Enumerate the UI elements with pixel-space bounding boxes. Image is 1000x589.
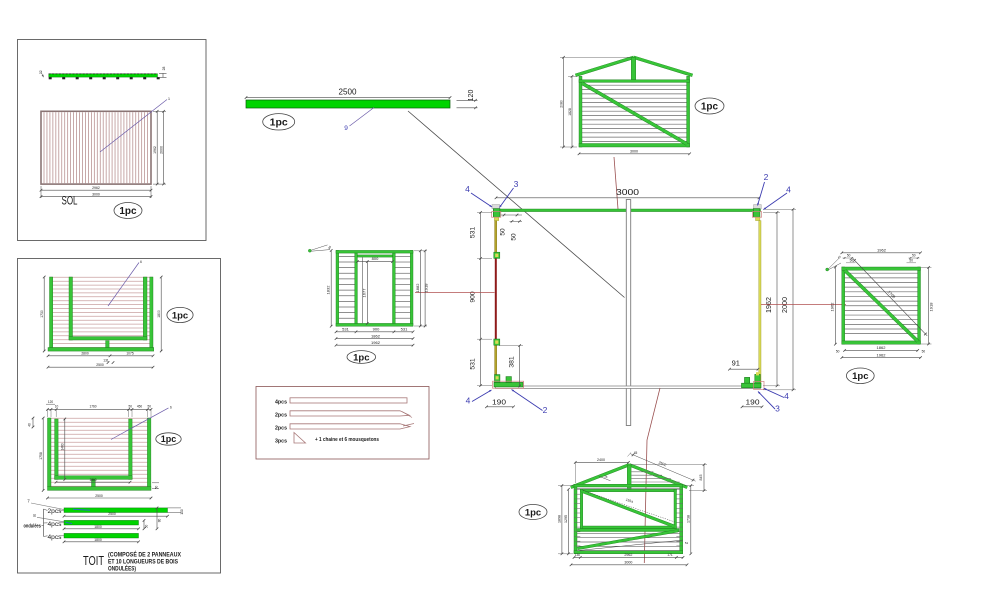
svg-text:4: 4: [784, 391, 789, 401]
svg-text:3000: 3000: [92, 192, 100, 196]
svg-text:50: 50: [145, 525, 149, 529]
svg-text:3: 3: [514, 179, 519, 189]
svg-text:1730: 1730: [40, 310, 44, 318]
svg-text:50: 50: [922, 349, 926, 353]
svg-text:9: 9: [344, 125, 348, 132]
svg-text:1862: 1862: [877, 345, 887, 350]
svg-text:4pcs: 4pcs: [48, 521, 63, 528]
svg-text:2pcs: 2pcs: [275, 412, 287, 418]
svg-text:4: 4: [466, 396, 471, 406]
svg-text:ONDULÉES): ONDULÉES): [108, 564, 136, 572]
svg-text:2400: 2400: [597, 458, 605, 462]
svg-text:50: 50: [836, 349, 840, 353]
svg-text:28: 28: [162, 67, 166, 71]
svg-text:2800: 2800: [81, 352, 89, 356]
svg-text:1918: 1918: [424, 283, 429, 293]
svg-text:531: 531: [401, 327, 408, 332]
svg-text:40: 40: [28, 423, 32, 427]
svg-text:91: 91: [732, 358, 740, 367]
svg-text:2962: 2962: [624, 553, 632, 557]
svg-text:2500: 2500: [96, 363, 104, 367]
svg-text:190: 190: [492, 397, 506, 406]
svg-text:1758: 1758: [39, 452, 43, 460]
svg-text:4: 4: [465, 184, 470, 194]
svg-text:2pcs: 2pcs: [275, 425, 287, 431]
svg-text:1075: 1075: [126, 352, 134, 356]
svg-text:2pcs: 2pcs: [48, 508, 63, 515]
svg-text:3000: 3000: [616, 187, 639, 197]
svg-text:1295: 1295: [564, 515, 568, 523]
svg-text:1962: 1962: [371, 340, 381, 345]
svg-text:ET 10 LONGUEURS DE BOIS: ET 10 LONGUEURS DE BOIS: [108, 559, 178, 565]
svg-text:1760: 1760: [89, 405, 96, 409]
svg-text:1pc: 1pc: [172, 310, 188, 321]
svg-text:45: 45: [634, 451, 638, 455]
svg-text:1pc: 1pc: [525, 507, 541, 518]
svg-text:171: 171: [667, 553, 673, 557]
svg-text:ondulées: ondulées: [24, 523, 42, 529]
svg-text:531: 531: [342, 327, 349, 332]
svg-text:51: 51: [685, 541, 689, 545]
svg-text:50: 50: [909, 258, 913, 262]
svg-text:190: 190: [746, 397, 760, 406]
svg-text:50: 50: [500, 228, 507, 236]
svg-text:3000: 3000: [630, 150, 638, 154]
svg-text:50: 50: [912, 253, 916, 257]
svg-text:1800: 1800: [157, 310, 161, 318]
svg-text:900: 900: [373, 327, 380, 332]
svg-text:50: 50: [847, 253, 851, 257]
svg-text:1pc: 1pc: [353, 352, 369, 363]
svg-text:1862: 1862: [371, 333, 381, 338]
svg-text:1828: 1828: [568, 108, 572, 116]
svg-text:130: 130: [575, 553, 581, 557]
svg-text:SOL: SOL: [62, 196, 78, 208]
svg-text:1800: 1800: [94, 538, 102, 542]
svg-text:4pcs: 4pcs: [275, 399, 287, 405]
svg-text:1882: 1882: [415, 283, 420, 293]
svg-text:80: 80: [158, 519, 162, 523]
svg-text:6: 6: [170, 406, 172, 410]
svg-text:(COMPOSÉ DE 2 PANNEAUX: (COMPOSÉ DE 2 PANNEAUX: [108, 550, 181, 558]
svg-text:800: 800: [372, 256, 379, 261]
svg-text:531: 531: [470, 227, 477, 239]
svg-text:2: 2: [543, 405, 548, 415]
svg-text:50: 50: [148, 405, 152, 409]
svg-text:450: 450: [137, 405, 143, 409]
svg-text:381: 381: [508, 356, 515, 368]
svg-text:32: 32: [39, 70, 43, 74]
svg-text:1962: 1962: [153, 146, 157, 154]
svg-text:1962: 1962: [830, 302, 835, 312]
svg-text:1738: 1738: [686, 515, 690, 523]
svg-text:120: 120: [468, 90, 475, 102]
svg-text:3pcs: 3pcs: [275, 438, 287, 444]
svg-text:1pc: 1pc: [161, 434, 177, 444]
svg-text:2500: 2500: [108, 512, 116, 516]
svg-text:2: 2: [764, 172, 769, 182]
svg-text:100: 100: [180, 509, 184, 515]
svg-text:2080: 2080: [559, 100, 563, 108]
svg-text:120: 120: [48, 400, 54, 404]
svg-text:+ 1 chaine et 6 mousquetons: + 1 chaine et 6 mousquetons: [315, 437, 379, 443]
svg-text:1pc: 1pc: [701, 102, 719, 113]
svg-text:531: 531: [470, 358, 477, 370]
svg-text:1pc: 1pc: [852, 371, 868, 382]
svg-text:1918: 1918: [928, 302, 933, 312]
svg-text:1962: 1962: [877, 248, 887, 253]
svg-text:1pc: 1pc: [270, 116, 288, 128]
svg-text:2500: 2500: [95, 494, 103, 498]
svg-text:50: 50: [155, 486, 159, 490]
svg-text:1pc: 1pc: [119, 206, 137, 217]
svg-text:845: 845: [699, 475, 703, 481]
svg-text:50: 50: [129, 405, 133, 409]
svg-text:1800: 1800: [94, 525, 102, 529]
svg-text:2500: 2500: [339, 87, 357, 97]
svg-text:10: 10: [55, 405, 59, 409]
svg-text:1860: 1860: [89, 478, 96, 482]
svg-text:1898: 1898: [557, 515, 561, 523]
svg-text:1962: 1962: [877, 352, 887, 357]
svg-text:3000: 3000: [624, 561, 632, 565]
svg-text:3: 3: [775, 404, 780, 414]
svg-text:2000: 2000: [159, 146, 163, 154]
svg-text:50: 50: [850, 258, 854, 262]
svg-text:4pcs: 4pcs: [48, 534, 63, 541]
svg-text:TOIT: TOIT: [83, 553, 104, 568]
svg-text:131: 131: [103, 358, 109, 362]
svg-text:1460: 1460: [61, 443, 65, 450]
svg-text:6: 6: [140, 260, 142, 264]
svg-text:50: 50: [511, 233, 518, 241]
svg-text:1677: 1677: [361, 288, 366, 298]
svg-text:2962: 2962: [92, 186, 100, 190]
svg-text:1832: 1832: [326, 285, 331, 295]
